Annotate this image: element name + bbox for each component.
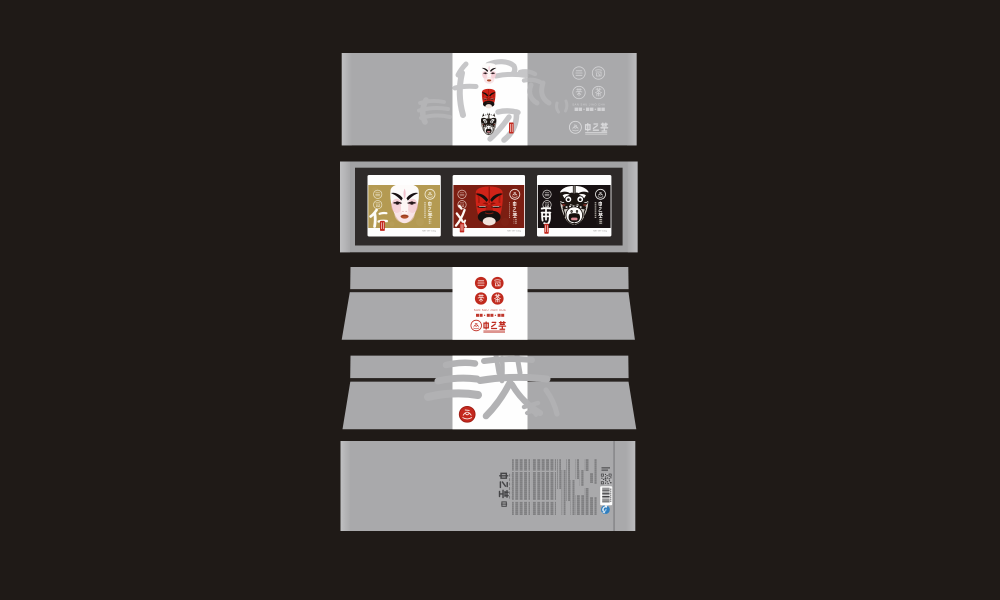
svg-text:NET WT 100g: NET WT 100g bbox=[507, 230, 522, 232]
svg-text:SAN SHU JIAO CHA: SAN SHU JIAO CHA bbox=[572, 103, 605, 107]
svg-text:SAN SHU JIAO CHA: SAN SHU JIAO CHA bbox=[474, 308, 506, 312]
svg-text:NET WT 100g: NET WT 100g bbox=[593, 230, 608, 232]
svg-text:NET WT 100g: NET WT 100g bbox=[422, 230, 437, 232]
